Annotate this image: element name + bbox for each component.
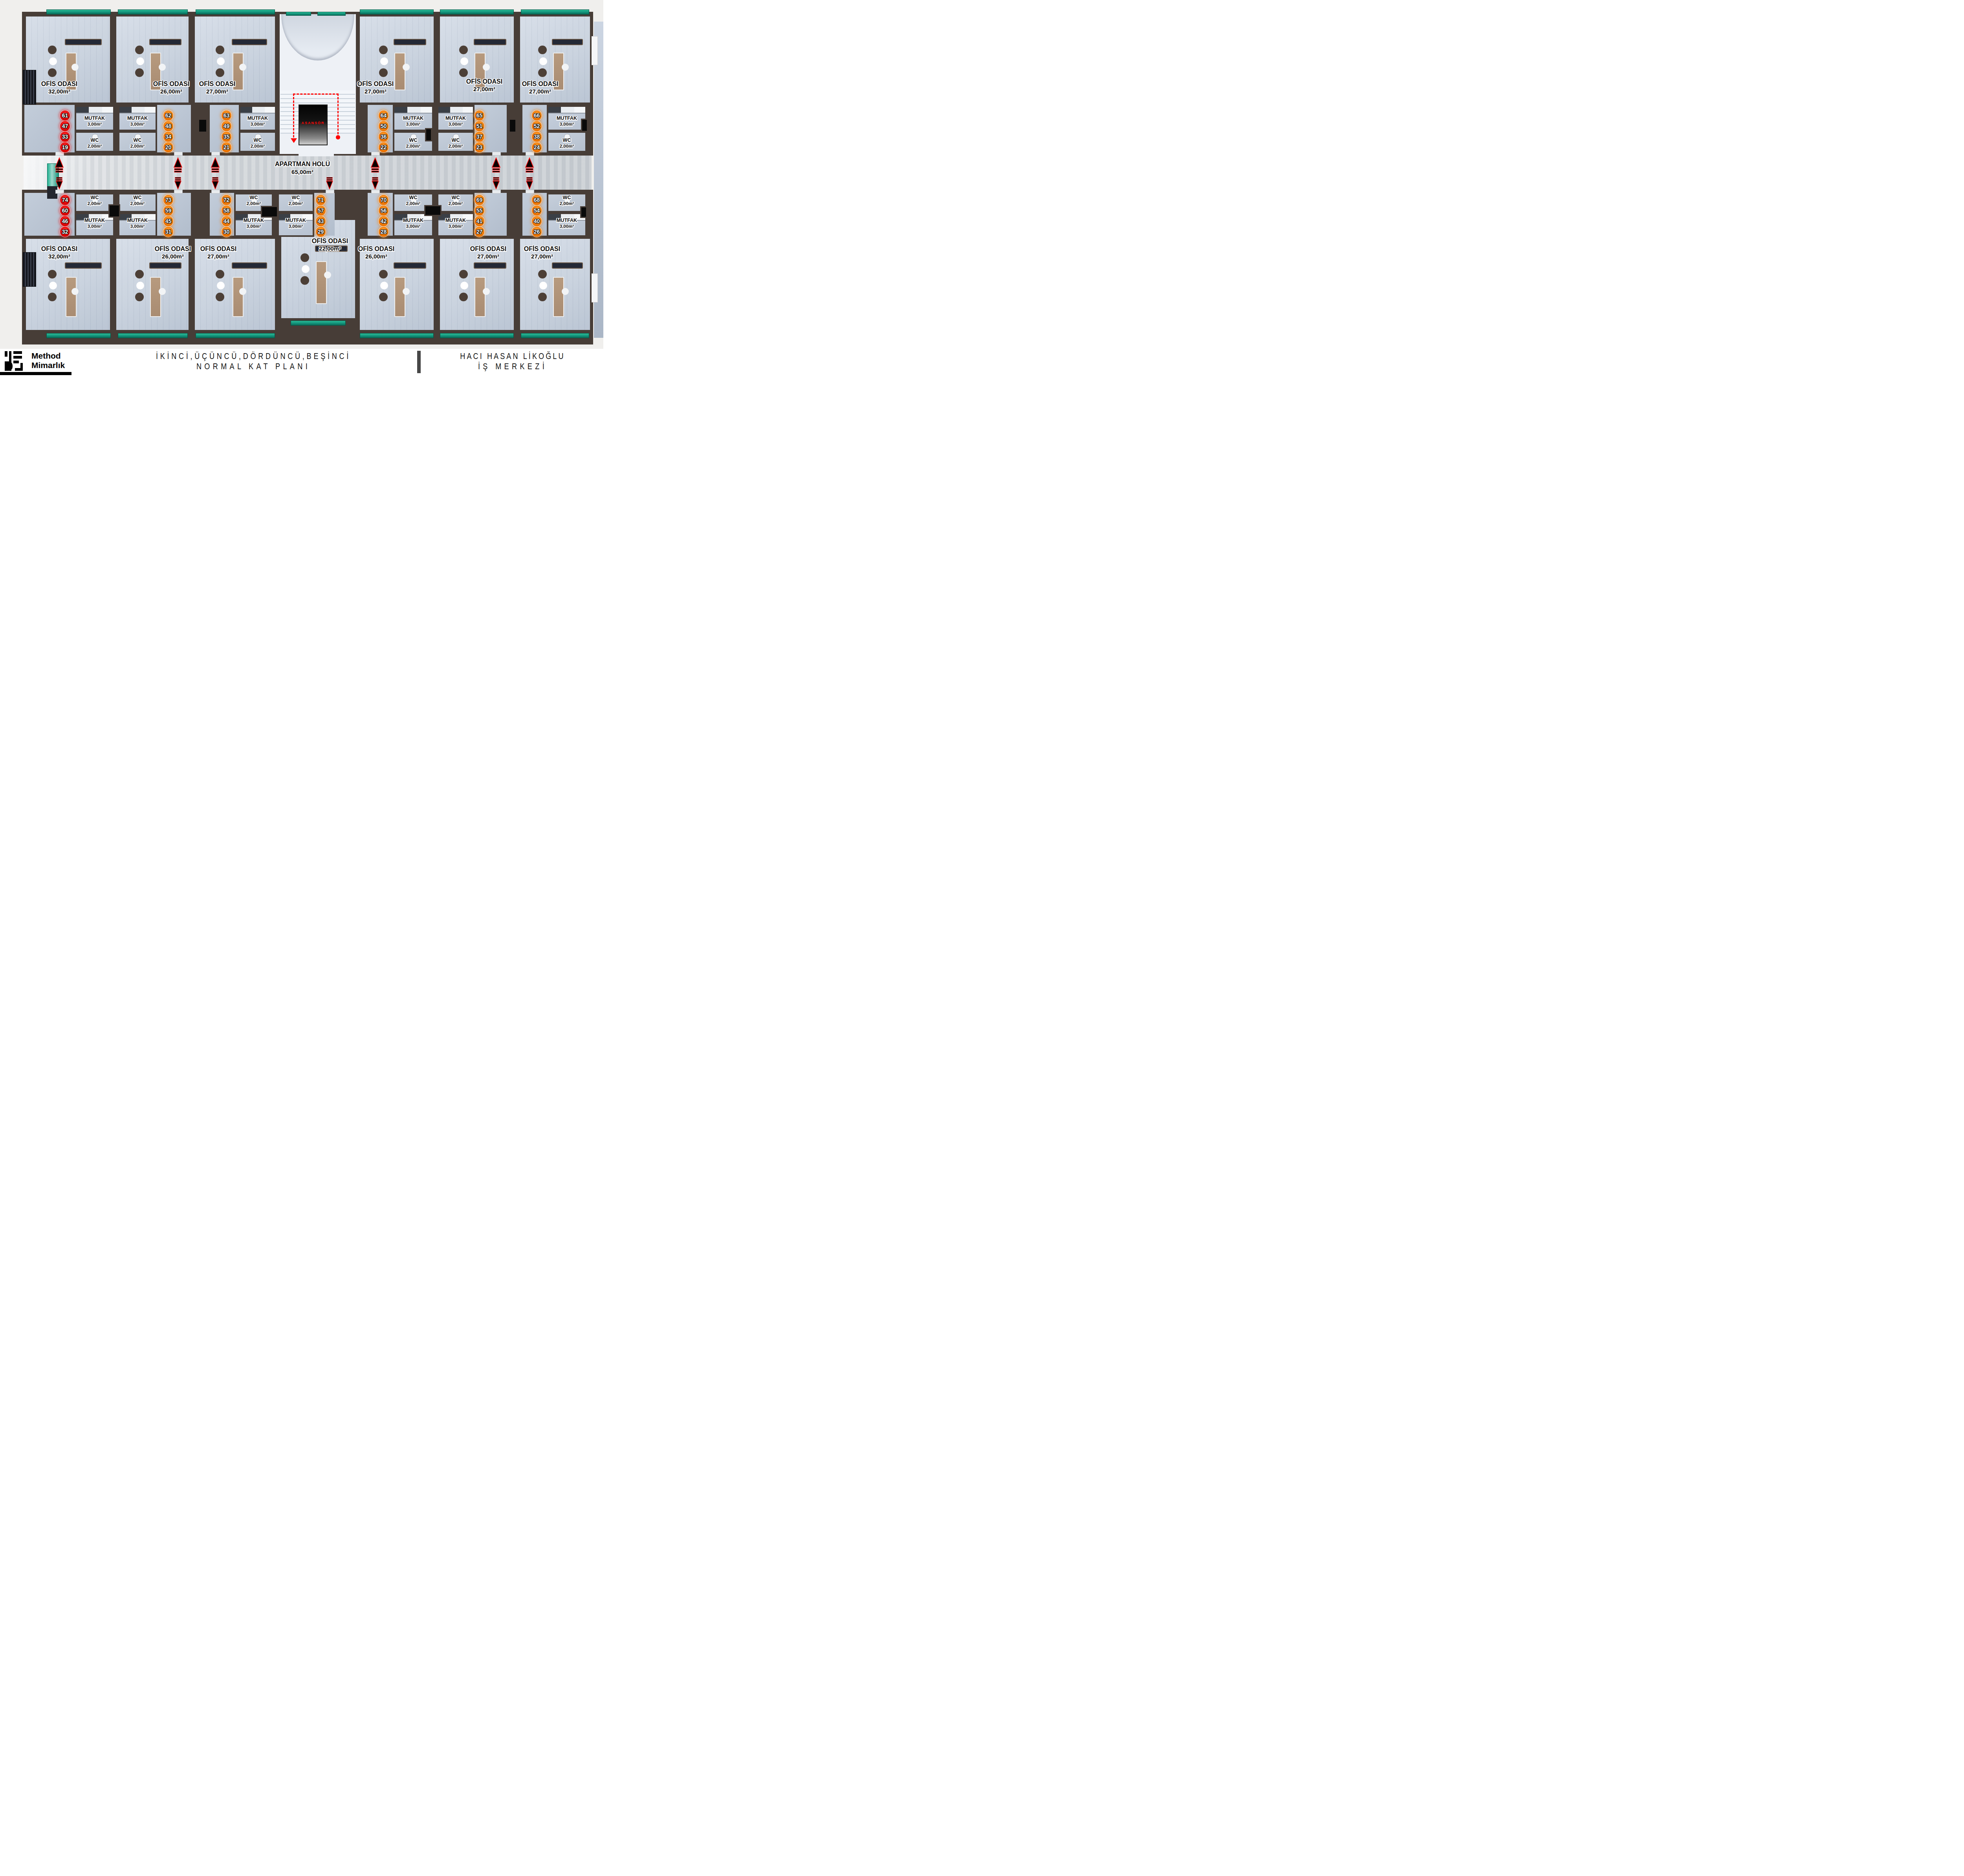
- unit-number-badge: 60: [60, 205, 70, 216]
- unit-door: [492, 190, 501, 194]
- unit-number-badge: 62: [163, 110, 173, 121]
- room-area: 3,00m²: [438, 121, 474, 127]
- office-room-label: OFİS ODASI27,00m²: [184, 80, 251, 95]
- room-name: MUTFAK: [548, 218, 586, 224]
- unit-door: [211, 190, 220, 194]
- unit-door: [371, 190, 380, 194]
- balcony-glass: [118, 333, 188, 338]
- balcony-glass: [118, 9, 188, 15]
- office-chairs: [135, 46, 144, 54]
- room-area: 3,00m²: [278, 224, 313, 229]
- kitchen-label: MUTFAK3,00m²: [119, 115, 156, 127]
- unit-number-badge: 41: [475, 216, 484, 226]
- balcony-glass: [360, 333, 434, 338]
- kitchen-label: MUTFAK3,00m²: [75, 115, 114, 127]
- unit-number-stack: 72584430: [222, 195, 231, 237]
- room-name: MUTFAK: [235, 218, 273, 224]
- brand-line1: Method: [31, 351, 65, 361]
- unit-number-badge: 30: [222, 227, 231, 237]
- direction-arrow-down-icon: [370, 177, 380, 189]
- office-room-label: OFİS ODASI27,00m²: [342, 80, 409, 95]
- room-area: 3,00m²: [75, 224, 114, 229]
- unit-number-badge: 73: [163, 195, 173, 205]
- unit-number-badge: 31: [163, 227, 173, 237]
- room-name: WC: [235, 195, 273, 201]
- room-area: 27,00m²: [185, 253, 252, 260]
- office-chairs: [538, 270, 547, 278]
- unit-number-badge: 40: [532, 216, 542, 226]
- room-name: MUTFAK: [438, 218, 474, 224]
- room-name: OFİS ODASI: [185, 245, 252, 253]
- unit-number-badge: 61: [60, 110, 70, 121]
- stair-path-arrowhead: [291, 138, 297, 143]
- stair-path-dashed: [293, 93, 294, 137]
- unit-number-badge: 19: [60, 142, 70, 152]
- balcony-glass: [291, 321, 346, 326]
- wc-label: WC2,00m²: [278, 195, 313, 207]
- kitchen-label: MUTFAK3,00m²: [394, 115, 433, 127]
- room-name: OFİS ODASI: [507, 80, 573, 88]
- office-room-label: OFİS ODASI27,00m²: [185, 245, 252, 260]
- unit-number-badge: 24: [532, 142, 542, 152]
- office-room-label: OFİS ODASI27,00m²: [509, 245, 575, 260]
- room-name: OFİS ODASI: [297, 237, 363, 245]
- room-area: 2,00m²: [278, 201, 313, 207]
- unit-number-badge: 22: [379, 142, 388, 152]
- unit-entry-floor: [157, 193, 191, 236]
- elevator-label: ASANSÖR: [299, 121, 327, 125]
- room-name: WC: [438, 137, 474, 143]
- kitchen-label: MUTFAK3,00m²: [235, 218, 273, 229]
- unit-number-badge: 49: [222, 121, 231, 131]
- unit-number-badge: 46: [60, 216, 70, 226]
- unit-door: [55, 190, 64, 194]
- room-name: MUTFAK: [240, 115, 276, 121]
- room-area: 2,00m²: [438, 201, 474, 207]
- unit-number-badge: 74: [60, 195, 70, 205]
- unit-number-badge: 27: [475, 227, 484, 237]
- room-area: 3,00m²: [240, 121, 276, 127]
- service-shaft: [509, 119, 517, 133]
- room-area: 2,00m²: [119, 143, 156, 149]
- unit-number-badge: 56: [379, 205, 388, 216]
- kitchen-label: MUTFAK3,00m²: [394, 218, 433, 229]
- service-shaft: [580, 206, 587, 218]
- kitchen-label: MUTFAK3,00m²: [438, 115, 474, 127]
- kitchen-label: MUTFAK3,00m²: [240, 115, 276, 127]
- room-area: 2,00m²: [548, 201, 586, 207]
- stair-path-dashed: [337, 93, 339, 134]
- room-name: MUTFAK: [119, 115, 156, 121]
- unit-number-stack: 62483420: [163, 110, 173, 152]
- unit-number-stack: 68544026: [532, 195, 542, 237]
- unit-number-badge: 66: [532, 110, 542, 121]
- office-chairs: [48, 46, 57, 54]
- room-area: 2,00m²: [548, 143, 586, 149]
- unit-number-badge: 36: [379, 132, 388, 142]
- room-area: 3,00m²: [75, 121, 114, 127]
- wc-label: WC2,00m²: [548, 195, 586, 207]
- unit-number-badge: 70: [379, 195, 388, 205]
- room-area: 27,00m²: [509, 253, 575, 260]
- wc-label: WC2,00m²: [235, 195, 273, 207]
- kitchen-label: MUTFAK3,00m²: [278, 218, 313, 229]
- floor-title-line1: İKİNCİ,ÜÇÜNCÜ,DÖRDÜNCÜ,BEŞİNCİ: [126, 351, 381, 361]
- unit-number-badge: 58: [222, 205, 231, 216]
- direction-arrow-up-icon: [491, 156, 501, 174]
- stair-hall-opening: [299, 152, 334, 156]
- floor-title-line2: NORMAL KAT PLANI: [126, 361, 381, 372]
- balcony-glass: [521, 333, 589, 338]
- room-area: 2,00m²: [394, 201, 433, 207]
- room-name: MUTFAK: [548, 115, 586, 121]
- office-chairs: [135, 270, 144, 278]
- corridor-daylight: [24, 156, 106, 190]
- office-chairs: [459, 46, 468, 54]
- unit-door: [174, 152, 183, 156]
- unit-number-badge: 35: [222, 132, 231, 142]
- office-room-label: OFİS ODASI32,00m²: [26, 245, 93, 260]
- room-name: WC: [240, 137, 276, 143]
- room-name: WC: [119, 137, 156, 143]
- room-name: WC: [119, 195, 156, 201]
- room-area: 3,00m²: [394, 121, 433, 127]
- room-name: WC: [75, 137, 114, 143]
- unit-number-badge: 28: [379, 227, 388, 237]
- wc-label: WC2,00m²: [75, 137, 114, 149]
- room-area: 3,00m²: [119, 224, 156, 229]
- balcony-glass: [196, 9, 275, 15]
- unit-number-badge: 50: [379, 121, 388, 131]
- unit-number-badge: 54: [532, 205, 542, 216]
- room-name: WC: [548, 195, 586, 201]
- unit-door: [211, 152, 220, 156]
- unit-number-badge: 47: [60, 121, 70, 131]
- unit-number-badge: 48: [163, 121, 173, 131]
- room-area: 32,00m²: [26, 253, 93, 260]
- unit-number-badge: 44: [222, 216, 231, 226]
- room-name: MUTFAK: [438, 115, 474, 121]
- unit-number-badge: 45: [163, 216, 173, 226]
- unit-number-badge: 33: [60, 132, 70, 142]
- balcony-glass: [440, 333, 514, 338]
- balcony-glass: [521, 9, 589, 15]
- kitchen-label: MUTFAK3,00m²: [438, 218, 474, 229]
- room-area: 2,00m²: [438, 143, 474, 149]
- corridor-name: APARTMAN HOLÜ: [255, 160, 350, 168]
- room-name: MUTFAK: [75, 115, 114, 121]
- stair-path-dashed: [293, 93, 339, 95]
- room-area: 27,00m²: [507, 88, 573, 95]
- room-name: OFİS ODASI: [342, 80, 409, 88]
- room-area: 2,00m²: [394, 143, 433, 149]
- room-name: WC: [394, 195, 433, 201]
- unit-number-badge: 43: [316, 216, 326, 226]
- kitchen-label: MUTFAK3,00m²: [548, 218, 586, 229]
- room-name: WC: [75, 195, 114, 201]
- unit-number-badge: 21: [222, 142, 231, 152]
- room-area: 2,00m²: [75, 201, 114, 207]
- unit-door: [174, 190, 183, 194]
- unit-entry-floor: [157, 105, 191, 152]
- kitchen-label: MUTFAK3,00m²: [548, 115, 586, 127]
- elevator: ASANSÖR: [299, 104, 328, 145]
- unit-number-badge: 52: [532, 121, 542, 131]
- unit-number-badge: 37: [475, 132, 484, 142]
- room-area: 2,00m²: [235, 201, 273, 207]
- unit-number-badge: 55: [475, 205, 484, 216]
- kitchen-label: MUTFAK3,00m²: [119, 218, 156, 229]
- room-area: 2,00m²: [240, 143, 276, 149]
- wc-label: WC2,00m²: [438, 137, 474, 149]
- unit-door: [492, 152, 501, 156]
- room-name: WC: [394, 137, 433, 143]
- unit-number-badge: 29: [316, 227, 326, 237]
- room-area: 3,00m²: [548, 224, 586, 229]
- room-name: MUTFAK: [75, 218, 114, 224]
- office-chairs: [48, 270, 57, 278]
- floor-title: İKİNCİ,ÜÇÜNCÜ,DÖRDÜNCÜ,BEŞİNCİ NORMAL KA…: [98, 351, 409, 372]
- unit-number-stack: 64503622: [379, 110, 388, 152]
- direction-arrow-up-icon: [173, 156, 183, 174]
- unit-number-badge: 65: [475, 110, 484, 121]
- title-divider: [417, 351, 421, 373]
- room-name: MUTFAK: [278, 218, 313, 224]
- unit-number-badge: 26: [532, 227, 542, 237]
- brand-line2: Mimarlık: [31, 361, 65, 370]
- unit-number-badge: 38: [532, 132, 542, 142]
- room-name: OFİS ODASI: [26, 245, 93, 253]
- wc-label: WC2,00m²: [119, 137, 156, 149]
- room-name: OFİS ODASI: [509, 245, 575, 253]
- service-shaft: [198, 119, 207, 133]
- floor-plan-canvas: ASANSÖR: [0, 0, 603, 375]
- corridor-label: APARTMAN HOLÜ 65,00m²: [255, 160, 350, 176]
- project-title: HACI HASAN LİKOĞLU İŞ MERKEZİ: [424, 351, 601, 372]
- wc-label: WC2,00m²: [240, 137, 276, 149]
- project-title-line2: İŞ MERKEZİ: [440, 361, 585, 372]
- room-name: MUTFAK: [394, 218, 433, 224]
- unit-number-badge: 32: [60, 227, 70, 237]
- room-name: WC: [438, 195, 474, 201]
- balcony-glass: [46, 333, 111, 338]
- room-area: 27,00m²: [342, 88, 409, 95]
- stair-window: [317, 12, 346, 16]
- stair-window: [286, 12, 311, 16]
- unit-number-badge: 69: [475, 195, 484, 205]
- direction-arrow-up-icon: [211, 156, 220, 174]
- room-name: OFİS ODASI: [184, 80, 251, 88]
- direction-arrow-down-icon: [173, 177, 183, 189]
- balcony-glass: [440, 9, 514, 15]
- corridor-area: 65,00m²: [255, 168, 350, 176]
- direction-arrow-down-icon: [55, 177, 64, 189]
- room-area: 3,00m²: [438, 224, 474, 229]
- room-area: 3,00m²: [548, 121, 586, 127]
- office-chairs: [459, 270, 468, 278]
- unit-number-badge: 63: [222, 110, 231, 121]
- direction-arrow-down-icon: [211, 177, 220, 189]
- room-area: 2,00m²: [119, 201, 156, 207]
- room-name: MUTFAK: [119, 218, 156, 224]
- room-area: 3,00m²: [235, 224, 273, 229]
- balcony-glass: [46, 9, 111, 15]
- unit-number-badge: 59: [163, 205, 173, 216]
- unit-number-badge: 42: [379, 216, 388, 226]
- balcony-glass: [360, 9, 434, 15]
- unit-number-stack: 73594531: [163, 195, 173, 237]
- kitchen-label: MUTFAK3,00m²: [75, 218, 114, 229]
- direction-arrow-down-icon: [491, 177, 501, 189]
- unit-door: [326, 190, 334, 194]
- unit-number-stack: 65513723: [475, 110, 484, 152]
- unit-number-badge: 68: [532, 195, 542, 205]
- office-chairs: [538, 46, 547, 54]
- room-area: 2,00m²: [75, 143, 114, 149]
- unit-number-badge: 71: [316, 195, 326, 205]
- unit-number-badge: 64: [379, 110, 388, 121]
- unit-number-badge: 34: [163, 132, 173, 142]
- wc-label: WC2,00m²: [394, 137, 433, 149]
- direction-arrow-up-icon: [525, 156, 534, 174]
- wc-label: WC2,00m²: [119, 195, 156, 207]
- office-chairs: [216, 46, 224, 54]
- unit-number-stack: 71574329: [316, 195, 326, 237]
- room-area: 3,00m²: [394, 224, 433, 229]
- unit-number-stack: 61473319: [60, 110, 70, 152]
- project-title-line1: HACI HASAN LİKOĞLU: [440, 351, 585, 361]
- direction-arrow-down-icon: [325, 177, 334, 189]
- wc-label: WC2,00m²: [75, 195, 114, 207]
- unit-number-stack: 70564228: [379, 195, 388, 237]
- footer-black-strip: [0, 372, 71, 375]
- unit-number-stack: 74604632: [60, 195, 70, 237]
- direction-arrow-down-icon: [525, 177, 534, 189]
- room-name: WC: [278, 195, 313, 201]
- unit-door: [526, 190, 534, 194]
- office-room-label: OFİS ODASI32,00m²: [26, 80, 93, 95]
- method-mimarlik-logo: [5, 351, 27, 371]
- room-name: OFİS ODASI: [26, 80, 93, 88]
- office-chairs: [300, 253, 309, 262]
- balcony-glass: [196, 333, 275, 338]
- room-area: 26,00m²: [343, 253, 410, 260]
- room-name: OFİS ODASI: [343, 245, 410, 253]
- unit-number-badge: 51: [475, 121, 484, 131]
- service-shaft: [261, 206, 278, 218]
- direction-arrow-up-icon: [55, 156, 64, 174]
- room-name: MUTFAK: [394, 115, 433, 121]
- room-area: 3,00m²: [119, 121, 156, 127]
- brand-name: Method Mimarlık: [31, 351, 65, 370]
- office-room-label: OFİS ODASI27,00m²: [507, 80, 573, 95]
- unit-number-stack: 63493521: [222, 110, 231, 152]
- room-area: 27,00m²: [184, 88, 251, 95]
- stair-path-dot: [336, 135, 340, 139]
- office-chairs: [216, 270, 224, 278]
- room-name: WC: [548, 137, 586, 143]
- wc-label: WC2,00m²: [438, 195, 474, 207]
- title-block: Method Mimarlık İKİNCİ,ÜÇÜNCÜ,DÖRDÜNCÜ,B…: [0, 349, 603, 375]
- unit-number-badge: 23: [475, 142, 484, 152]
- room-area: 32,00m²: [26, 88, 93, 95]
- unit-number-badge: 72: [222, 195, 231, 205]
- office-room-label: OFİS ODASI26,00m²: [343, 245, 410, 260]
- unit-number-stack: 69554127: [475, 195, 484, 237]
- direction-arrow-up-icon: [370, 156, 380, 174]
- office-chairs: [379, 46, 388, 54]
- unit-number-badge: 57: [316, 205, 326, 216]
- office-chairs: [379, 270, 388, 278]
- unit-number-stack: 66523824: [532, 110, 542, 152]
- unit-number-badge: 20: [163, 142, 173, 152]
- service-shaft: [424, 205, 442, 216]
- wc-label: WC2,00m²: [548, 137, 586, 149]
- wc-label: WC2,00m²: [394, 195, 433, 207]
